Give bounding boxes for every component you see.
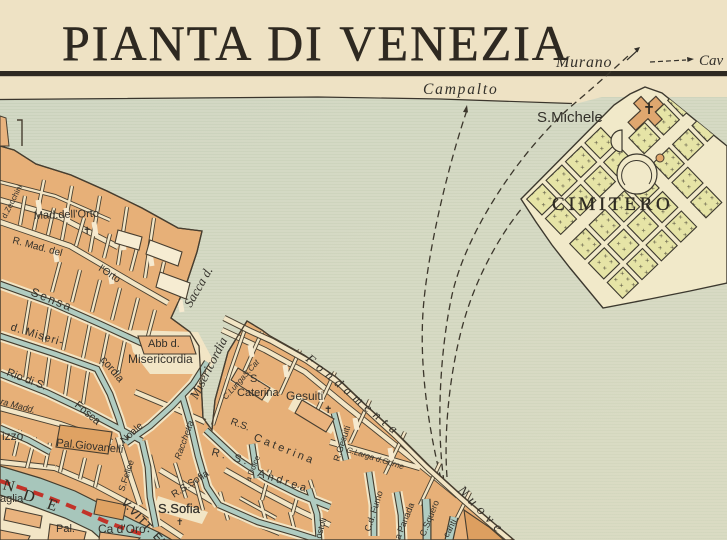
svg-text:✝: ✝ bbox=[176, 517, 184, 527]
svg-text:Mad.dell'Orto: Mad.dell'Orto bbox=[34, 208, 99, 222]
svg-text:Ca d'Oro: Ca d'Oro bbox=[98, 522, 146, 536]
svg-text:Abb d.: Abb d. bbox=[148, 338, 180, 350]
svg-text:✝: ✝ bbox=[324, 405, 332, 416]
svg-text:Cav: Cav bbox=[699, 53, 724, 69]
svg-text:Murano: Murano bbox=[555, 54, 612, 71]
svg-text:Caterina: Caterina bbox=[237, 387, 279, 399]
svg-text:✝: ✝ bbox=[83, 226, 91, 237]
svg-text:Misericordia: Misericordia bbox=[128, 352, 193, 366]
svg-text:izzo: izzo bbox=[2, 429, 24, 443]
svg-text:S.: S. bbox=[250, 373, 260, 385]
svg-text:PIANTA DI VENEZIA: PIANTA DI VENEZIA bbox=[62, 15, 570, 71]
svg-text:S.Sofia: S.Sofia bbox=[158, 501, 201, 516]
svg-text:CIMITERO: CIMITERO bbox=[552, 194, 673, 215]
svg-text:Campalto: Campalto bbox=[423, 81, 499, 98]
svg-text:Pal.: Pal. bbox=[56, 523, 75, 535]
svg-text:Gesuiti: Gesuiti bbox=[286, 389, 323, 403]
svg-text:S.Michele: S.Michele bbox=[537, 109, 603, 126]
svg-text:✝: ✝ bbox=[643, 101, 656, 118]
